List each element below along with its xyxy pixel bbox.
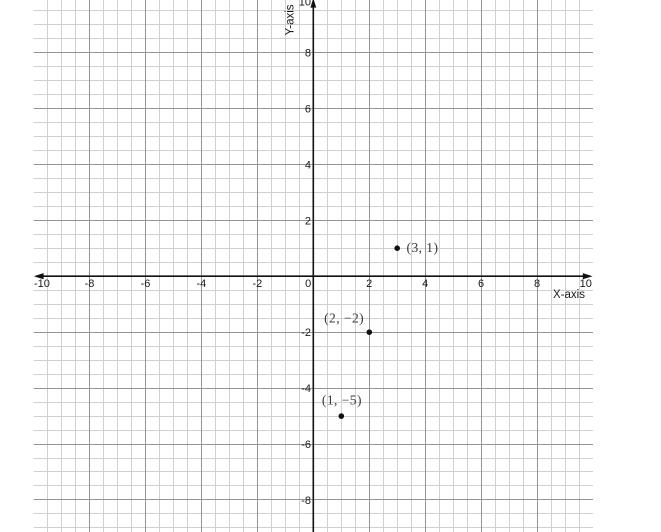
- svg-text:-2: -2: [253, 278, 263, 290]
- svg-text:-6: -6: [301, 439, 311, 451]
- svg-text:10: 10: [299, 0, 311, 9]
- svg-text:-10: -10: [34, 278, 50, 290]
- svg-text:2: 2: [305, 215, 311, 227]
- svg-text:-6: -6: [141, 278, 151, 290]
- svg-text:2: 2: [366, 278, 372, 290]
- svg-text:Y-axis: Y-axis: [285, 4, 297, 35]
- svg-text:8: 8: [305, 47, 311, 59]
- svg-text:-4: -4: [301, 383, 311, 395]
- svg-text:-8: -8: [85, 278, 95, 290]
- svg-text:(1, −5): (1, −5): [322, 393, 362, 408]
- svg-text:-8: -8: [301, 495, 311, 507]
- svg-text:8: 8: [534, 278, 540, 290]
- svg-text:4: 4: [305, 159, 311, 171]
- svg-text:X-axis: X-axis: [553, 289, 585, 301]
- svg-text:0: 0: [305, 278, 311, 290]
- svg-text:(2, −2): (2, −2): [324, 311, 364, 326]
- svg-text:-4: -4: [197, 278, 207, 290]
- svg-text:6: 6: [305, 103, 311, 115]
- svg-text:(3, 1): (3, 1): [407, 240, 439, 255]
- svg-text:4: 4: [422, 278, 428, 290]
- svg-text:6: 6: [478, 278, 484, 290]
- svg-text:-2: -2: [301, 327, 311, 339]
